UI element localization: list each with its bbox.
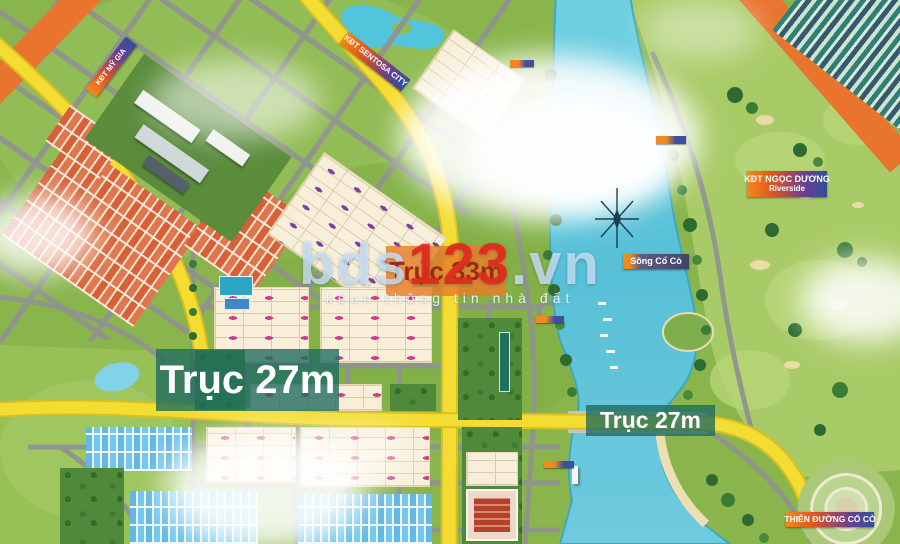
road-label-truc-33m-text: Trục 33m bbox=[389, 256, 503, 287]
formal-plaza bbox=[466, 489, 518, 541]
riverside-park-center bbox=[458, 318, 522, 420]
housing-cluster-blue-center-south bbox=[298, 494, 432, 544]
housing-cluster-blue-south bbox=[130, 491, 258, 544]
master-plan-map: KĐT MỸ GIA KĐT SENTOSA CITY KĐT NGỌC DƯƠ… bbox=[0, 0, 900, 544]
housing-cluster-blue-southwest bbox=[86, 427, 192, 471]
banner-kdt-ngoc-duong: KĐT NGỌC DƯƠNG Riverside bbox=[747, 171, 827, 197]
green-band-east bbox=[462, 427, 522, 544]
banner-thien-duong-co-co: THIÊN ĐƯỜNG CỔ CÒ bbox=[786, 512, 874, 527]
mini-label-chip bbox=[510, 60, 534, 67]
plot-cluster-cream-south bbox=[206, 427, 296, 483]
campus-building bbox=[205, 129, 250, 166]
mini-label-chip bbox=[544, 461, 574, 468]
banner-kdt-ngoc-duong-line2: Riverside bbox=[769, 185, 805, 194]
banner-song-co-co: Sông Cổ Cò bbox=[623, 254, 689, 269]
riverside-monument bbox=[572, 466, 578, 484]
mini-label-chip bbox=[536, 316, 564, 323]
plot-cluster-cream-center-south bbox=[300, 427, 430, 487]
green-block-row2 bbox=[390, 384, 436, 411]
road-label-truc-27m-east: Trục 27m bbox=[586, 405, 715, 436]
circular-park-plaza bbox=[788, 452, 900, 544]
road-label-truc-27m-east-text: Trục 27m bbox=[600, 407, 701, 434]
plot-mini-block bbox=[466, 452, 518, 486]
banner-song-co-co-label: Sông Cổ Cò bbox=[630, 257, 682, 267]
compass-icon bbox=[592, 188, 642, 248]
tower-building bbox=[499, 332, 510, 392]
banner-thien-duong-co-co-label: THIÊN ĐƯỜNG CỔ CÒ bbox=[784, 515, 875, 524]
park-block-southwest bbox=[60, 468, 124, 544]
road-label-truc-33m: Trục 33m bbox=[386, 246, 506, 296]
road-label-truc-27m-west-text: Trục 27m bbox=[160, 358, 336, 403]
swimming-pool bbox=[219, 276, 253, 296]
mini-label-chip bbox=[656, 136, 686, 144]
tennis-court bbox=[224, 298, 250, 310]
road-label-truc-27m-west: Trục 27m bbox=[156, 349, 339, 411]
plaza-parterre bbox=[474, 498, 510, 532]
